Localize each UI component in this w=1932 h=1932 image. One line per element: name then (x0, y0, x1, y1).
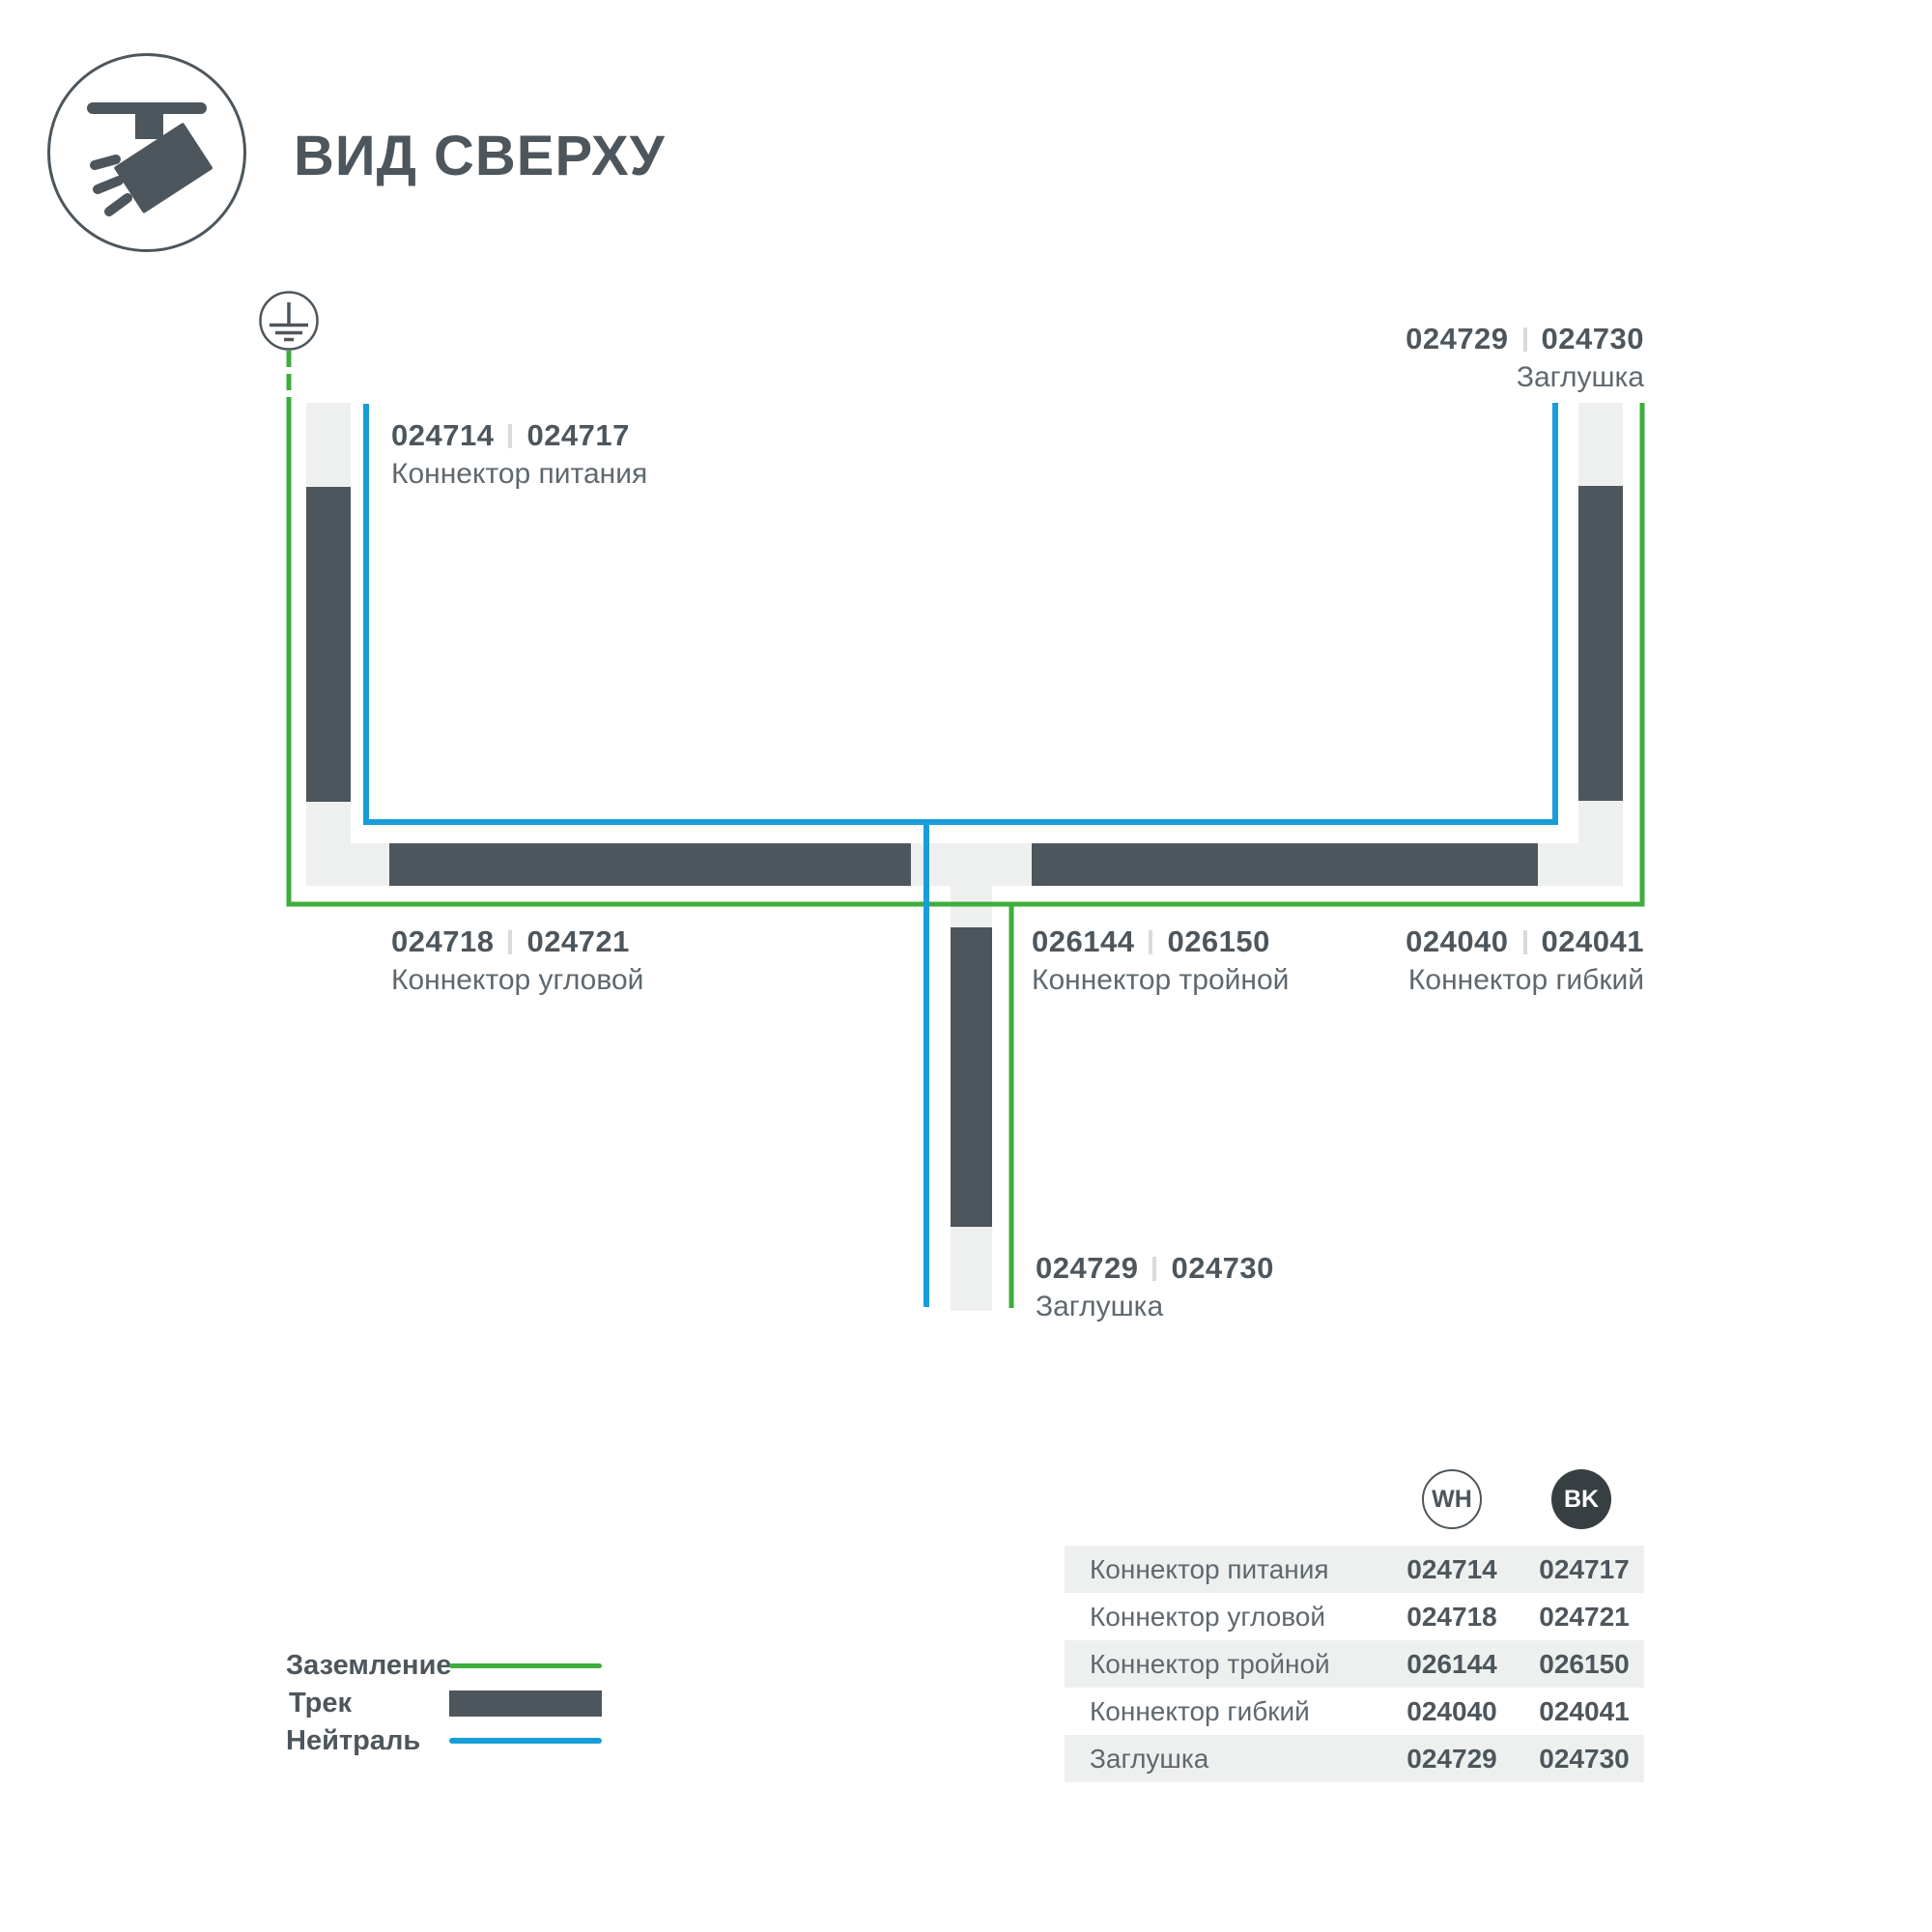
legend-swatch-neutral-line (449, 1738, 602, 1744)
table-row: Коннектор угловой 024718 024721 (1065, 1593, 1644, 1640)
row-name: Заглушка (1065, 1744, 1379, 1775)
row-name: Коннектор тройной (1065, 1649, 1379, 1680)
legend-swatch-ground-line (449, 1663, 602, 1668)
label-power-connector: 024714024717 Коннектор питания (391, 419, 647, 491)
part-code-wh: 024718 (391, 924, 494, 958)
part-name: Коннектор угловой (391, 964, 643, 997)
table-row: Заглушка 024729 024730 (1065, 1735, 1644, 1782)
part-name: Коннектор тройной (1032, 964, 1289, 997)
code-separator (508, 424, 512, 448)
row-name: Коннектор угловой (1065, 1602, 1379, 1633)
track-segment-horizontal-right (1032, 843, 1538, 886)
label-flexible-connector: 024040024041 Коннектор гибкий (1406, 925, 1644, 997)
code-separator (1149, 930, 1152, 954)
row-code-wh: 024729 (1379, 1744, 1524, 1775)
row-code-bk: 024730 (1524, 1744, 1644, 1775)
code-separator (1152, 1257, 1156, 1281)
code-separator (1523, 930, 1527, 954)
table-row: Коннектор тройной 026144 026150 (1065, 1640, 1644, 1688)
part-code-bk: 024041 (1542, 924, 1644, 958)
part-code-wh: 024729 (1406, 322, 1508, 355)
top-view-diagram-page: ВИД СВЕРХУ 024714024717 Коннектор питани… (0, 0, 1932, 1932)
code-separator (508, 930, 512, 954)
spotlight-badge (47, 53, 246, 252)
legend-label-track: Трек (289, 1688, 352, 1719)
part-code-wh: 024729 (1036, 1251, 1138, 1285)
part-code-wh: 024714 (391, 418, 494, 452)
track-segment-right (1578, 486, 1623, 801)
row-code-wh: 024040 (1379, 1696, 1524, 1727)
legend-label-ground: Заземление (286, 1650, 452, 1682)
label-end-cap-bottom: 024729024730 Заглушка (1036, 1252, 1274, 1323)
part-code-bk: 024721 (526, 924, 629, 958)
row-name: Коннектор гибкий (1065, 1696, 1379, 1727)
part-code-bk: 024730 (1542, 322, 1644, 355)
code-separator (1523, 327, 1527, 352)
part-name: Коннектор гибкий (1406, 964, 1644, 997)
table-row: Коннектор гибкий 024040 024041 (1065, 1688, 1644, 1735)
track-segment-center-drop (951, 927, 992, 1227)
part-code-bk: 024717 (526, 418, 629, 452)
track-segment-left (306, 487, 351, 802)
page-title: ВИД СВЕРХУ (294, 124, 666, 188)
table-row: Коннектор питания 024714 024717 (1065, 1546, 1644, 1593)
part-name: Коннектор питания (391, 458, 647, 491)
track-segment-horizontal-left (389, 843, 911, 886)
part-name: Заглушка (1036, 1291, 1274, 1323)
row-name: Коннектор питания (1065, 1554, 1379, 1585)
row-code-bk: 024041 (1524, 1696, 1644, 1727)
row-code-bk: 026150 (1524, 1649, 1644, 1680)
part-name: Заглушка (1406, 361, 1644, 394)
part-code-bk: 024730 (1171, 1251, 1273, 1285)
parts-table: Коннектор питания 024714 024717 Коннекто… (1065, 1546, 1644, 1782)
part-code-wh: 026144 (1032, 924, 1134, 958)
part-code-wh: 024040 (1406, 924, 1508, 958)
label-end-cap-top: 024729024730 Заглушка (1406, 323, 1644, 394)
row-code-wh: 026144 (1379, 1649, 1524, 1680)
row-code-wh: 024718 (1379, 1602, 1524, 1633)
column-header-wh: WH (1422, 1469, 1482, 1529)
row-code-bk: 024721 (1524, 1602, 1644, 1633)
spotlight-icon (50, 56, 243, 249)
ground-symbol-icon (258, 290, 320, 352)
legend-label-neutral: Нейтраль (286, 1725, 420, 1757)
row-code-bk: 024717 (1524, 1554, 1644, 1585)
column-header-bk: BK (1551, 1469, 1611, 1529)
label-corner-connector: 024718024721 Коннектор угловой (391, 925, 643, 997)
part-code-bk: 026150 (1167, 924, 1269, 958)
legend-swatch-track-bar (449, 1690, 602, 1717)
label-triple-connector: 026144026150 Коннектор тройной (1032, 925, 1289, 997)
row-code-wh: 024714 (1379, 1554, 1524, 1585)
